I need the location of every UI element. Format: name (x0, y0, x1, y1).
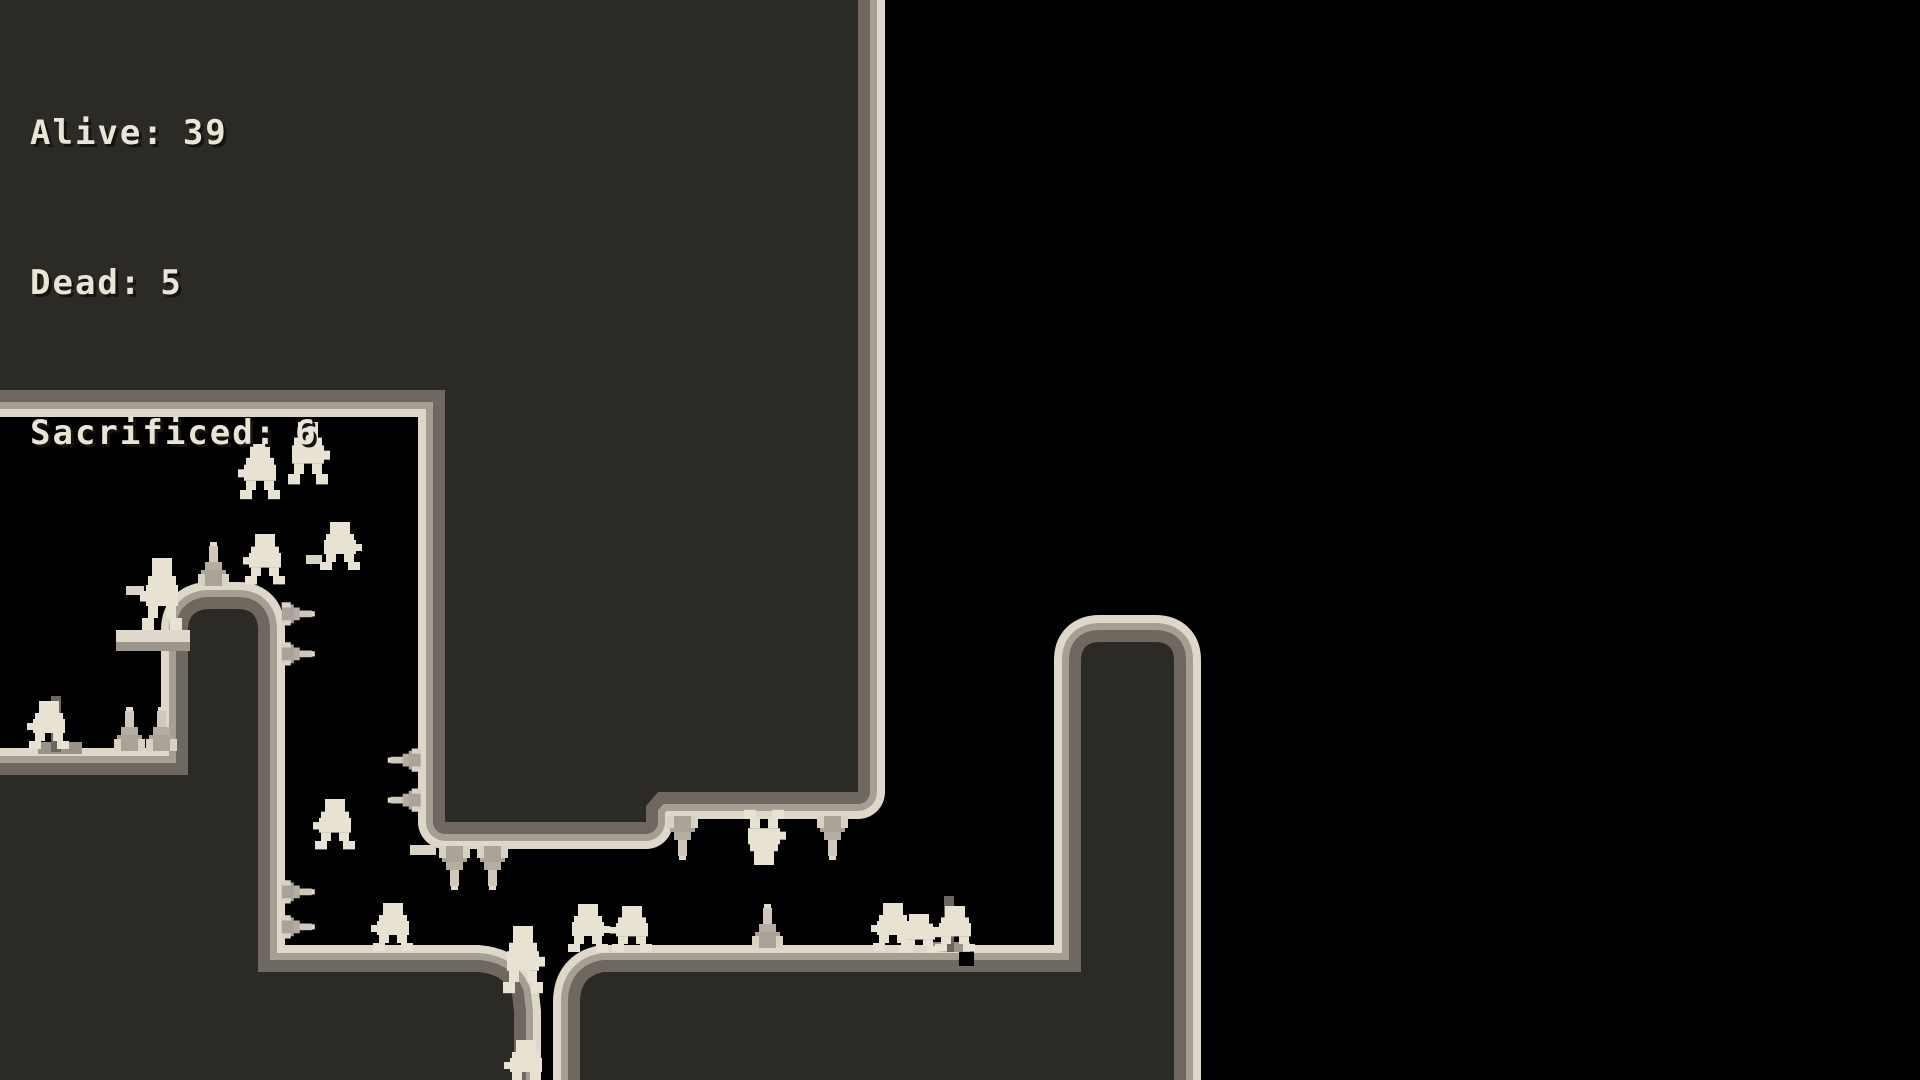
hud-sacrificed-label: Sacrificed: (30, 408, 277, 458)
hud-sacrificed-value: 6 (295, 408, 317, 458)
debris-slab-shadow (116, 642, 190, 651)
game-viewport[interactable]: Alive:39 Dead:5 Sacrificed:6 (0, 0, 1920, 1080)
debris-slab-top (116, 630, 190, 642)
debris-chip (410, 845, 436, 855)
hud-dead-value: 5 (160, 258, 182, 308)
hud-alive-label: Alive: (30, 108, 165, 158)
hud-alive-counter: Alive:39 (30, 108, 318, 158)
hud-dead-label: Dead: (30, 258, 142, 308)
hud-alive-value: 39 (183, 108, 228, 158)
hud-sacrificed-counter: Sacrificed:6 (30, 408, 318, 458)
hud: Alive:39 Dead:5 Sacrificed:6 (30, 8, 318, 558)
hud-dead-counter: Dead:5 (30, 258, 318, 308)
